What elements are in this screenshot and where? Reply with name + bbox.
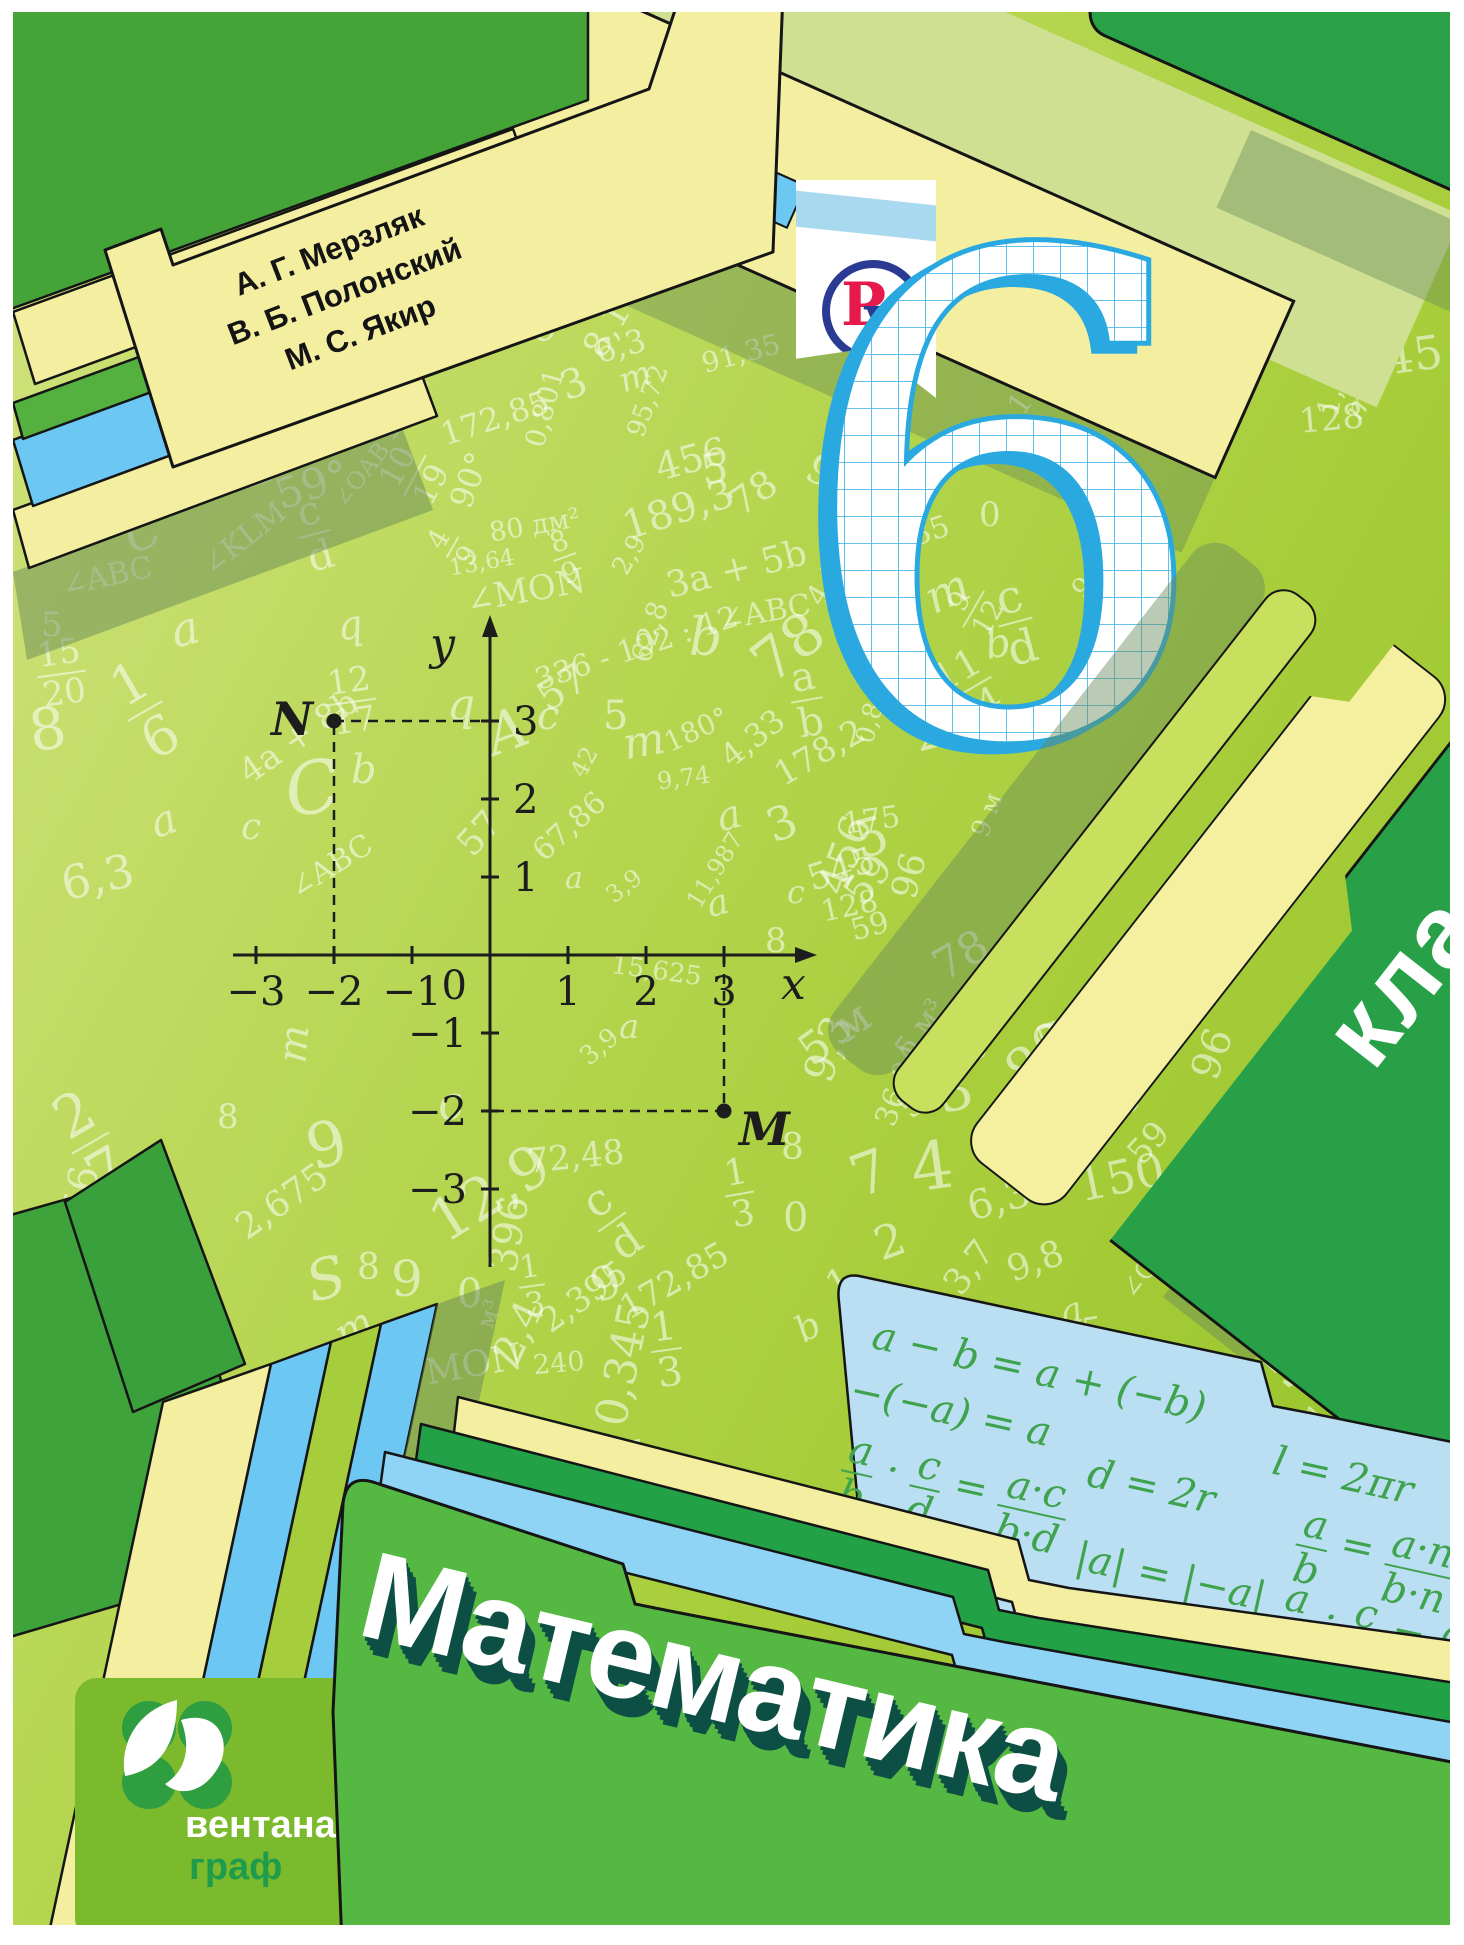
x-axis-label: x	[781, 959, 806, 1010]
scatter-math-text: a	[145, 797, 183, 845]
book-cover: m1,503961005451288,1635915,625S175ac36,0…	[13, 12, 1450, 1925]
y-tick-label: 1	[513, 855, 538, 901]
y-tick-label: 3	[513, 699, 538, 745]
y-axis-arrow-icon	[482, 615, 498, 637]
point-N	[327, 714, 342, 729]
x-tick-label: 1	[555, 969, 580, 1015]
y-tick-label: 2	[513, 777, 538, 823]
y-tick-label: −1	[408, 1011, 467, 1057]
scatter-math-text: 59	[848, 908, 893, 947]
origin-label: 0	[442, 963, 467, 1009]
x-tick-label: −1	[383, 969, 442, 1015]
y-axis-label: y	[428, 619, 456, 670]
x-tick-label: 2	[633, 969, 658, 1015]
x-tick-label: −2	[305, 969, 364, 1015]
x-tick-label: 3	[711, 969, 736, 1015]
point-N-label: N	[269, 692, 315, 746]
scatter-math-text: 6,3	[57, 847, 138, 907]
x-tick-label: −3	[227, 969, 286, 1015]
